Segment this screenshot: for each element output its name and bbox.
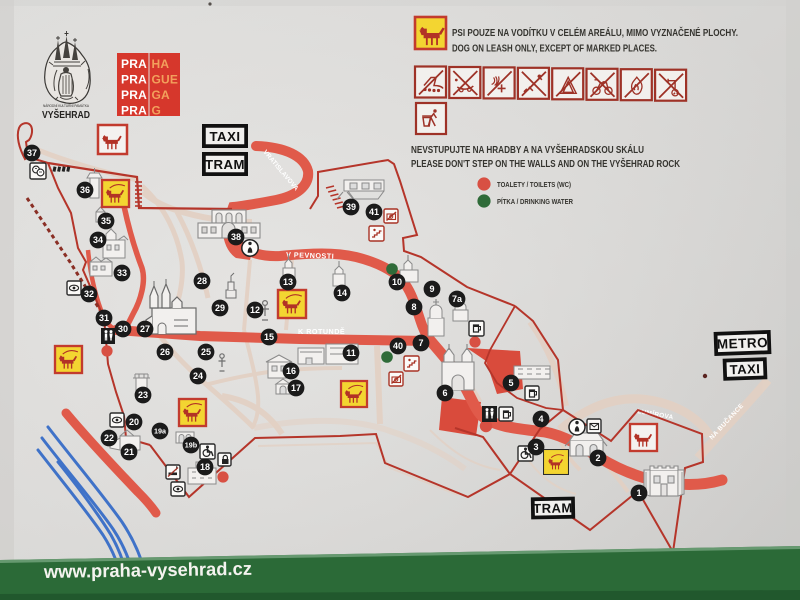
svg-text:PRA: PRA [121, 57, 147, 71]
svg-text:GUE: GUE [152, 73, 179, 87]
svg-text:TOALETY / TOILETS (WC): TOALETY / TOILETS (WC) [497, 180, 572, 189]
svg-text:6: 6 [442, 388, 447, 398]
svg-text:1: 1 [636, 488, 641, 498]
svg-text:23: 23 [138, 390, 148, 400]
svg-text:TAXI: TAXI [209, 129, 240, 144]
svg-text:16: 16 [286, 366, 296, 376]
svg-text:40: 40 [393, 341, 403, 351]
svg-text:22: 22 [104, 433, 114, 443]
svg-text:27: 27 [140, 324, 150, 334]
svg-text:K ROTUNDĚ: K ROTUNDĚ [298, 327, 345, 336]
svg-text:NÁRODNÍ KULTURNÍ PAMÁTKA: NÁRODNÍ KULTURNÍ PAMÁTKA [43, 104, 90, 108]
svg-text:PRA: PRA [121, 104, 147, 118]
svg-text:4: 4 [538, 414, 543, 424]
svg-text:20: 20 [129, 417, 139, 427]
svg-text:METRO: METRO [717, 335, 769, 352]
svg-text:TRAM: TRAM [533, 500, 573, 516]
svg-text:10: 10 [392, 277, 402, 287]
svg-text:www.praha-vysehrad.cz: www.praha-vysehrad.cz [43, 558, 252, 582]
svg-text:PRA: PRA [121, 88, 147, 102]
svg-text:36: 36 [80, 185, 90, 195]
svg-text:G: G [152, 104, 162, 118]
svg-text:35: 35 [101, 216, 111, 226]
svg-text:NEVSTUPUJTE NA HRADBY A NA VYŠ: NEVSTUPUJTE NA HRADBY A NA VYŠEHRADSKOU … [411, 144, 644, 156]
svg-text:15: 15 [264, 332, 274, 342]
svg-text:7: 7 [418, 338, 423, 348]
svg-text:38: 38 [231, 232, 241, 242]
svg-text:HA: HA [152, 57, 170, 71]
svg-text:13: 13 [283, 277, 293, 287]
svg-text:26: 26 [160, 347, 170, 357]
svg-text:39: 39 [346, 202, 356, 212]
svg-text:29: 29 [215, 303, 225, 313]
svg-text:TRAM: TRAM [205, 157, 245, 172]
svg-text:37: 37 [27, 148, 37, 158]
svg-text:19b: 19b [185, 441, 198, 450]
svg-text:17: 17 [291, 383, 301, 393]
svg-text:21: 21 [124, 447, 134, 457]
svg-text:32: 32 [84, 289, 94, 299]
svg-text:5: 5 [508, 378, 513, 388]
svg-text:41: 41 [369, 207, 379, 217]
svg-text:12: 12 [250, 305, 260, 315]
svg-text:3: 3 [533, 442, 538, 452]
svg-text:18: 18 [200, 462, 210, 472]
svg-text:GA: GA [152, 88, 171, 102]
svg-text:2: 2 [595, 453, 600, 463]
svg-text:34: 34 [93, 235, 103, 245]
svg-text:11: 11 [346, 348, 356, 358]
svg-text:PSI POUZE NA VODÍTKU V CELÉM A: PSI POUZE NA VODÍTKU V CELÉM AREÁLU, MIM… [452, 27, 738, 39]
svg-text:PRA: PRA [121, 73, 147, 87]
svg-text:7a: 7a [452, 294, 463, 304]
svg-text:19a: 19a [154, 427, 167, 436]
svg-text:PLEASE DON'T STEP ON THE WALLS: PLEASE DON'T STEP ON THE WALLS AND ON TH… [411, 158, 680, 170]
svg-text:8: 8 [411, 302, 416, 312]
svg-text:9: 9 [429, 284, 434, 294]
svg-text:25: 25 [201, 347, 211, 357]
svg-text:14: 14 [337, 288, 347, 298]
svg-text:24: 24 [193, 371, 203, 381]
svg-text:30: 30 [118, 324, 128, 334]
svg-text:28: 28 [197, 276, 207, 286]
svg-text:DOG ON LEASH ONLY, EXCEPT OF M: DOG ON LEASH ONLY, EXCEPT OF MARKED PLAC… [452, 44, 657, 55]
svg-text:V PEVNOSTI: V PEVNOSTI [286, 250, 334, 261]
svg-text:33: 33 [117, 268, 127, 278]
svg-text:PÍTKA / DRINKING WATER: PÍTKA / DRINKING WATER [497, 197, 574, 206]
svg-text:TAXI: TAXI [729, 361, 760, 377]
svg-text:31: 31 [99, 313, 109, 323]
svg-text:VYŠEHRAD: VYŠEHRAD [42, 108, 90, 121]
